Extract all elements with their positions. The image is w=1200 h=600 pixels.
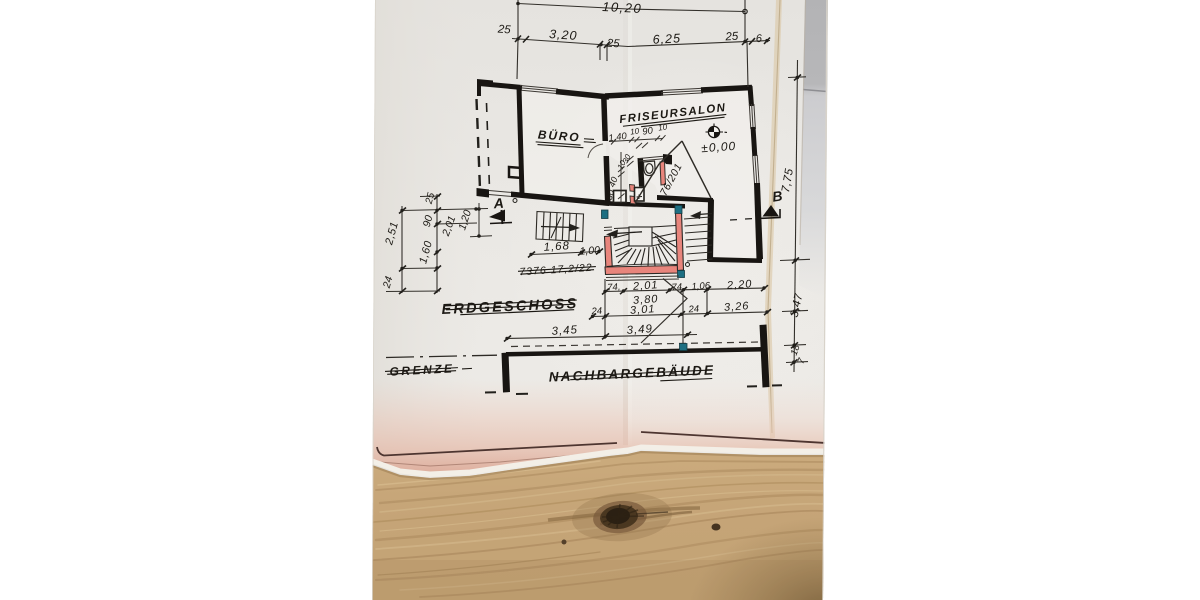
svg-text:3,20: 3,20 [549,27,578,43]
svg-text:10,20: 10,20 [602,0,643,16]
svg-text:1,00: 1,00 [579,244,600,257]
svg-text:10: 10 [630,126,641,136]
svg-text:10: 10 [658,122,669,132]
svg-text:1,68: 1,68 [543,240,570,254]
svg-text:25: 25 [724,31,739,44]
svg-text:BÜRO: BÜRO [537,127,580,145]
svg-text:24: 24 [687,304,699,316]
svg-text:6,25: 6,25 [652,31,681,46]
svg-text:1,06: 1,06 [691,280,711,292]
svg-text:2,20: 2,20 [726,278,753,292]
svg-text:3,49: 3,49 [626,323,653,337]
svg-text:±0,00: ±0,00 [701,139,737,155]
svg-text:3,45: 3,45 [551,324,578,338]
svg-text:24: 24 [590,306,602,318]
svg-text:74: 74 [671,282,682,294]
svg-text:74,: 74, [607,282,621,294]
svg-text:3,01: 3,01 [630,303,656,317]
svg-text:25: 25 [496,24,511,37]
svg-text:A: A [492,195,504,212]
svg-text:2,01: 2,01 [632,279,659,293]
svg-text:3,26: 3,26 [724,300,750,314]
svg-text:25: 25 [605,38,620,51]
